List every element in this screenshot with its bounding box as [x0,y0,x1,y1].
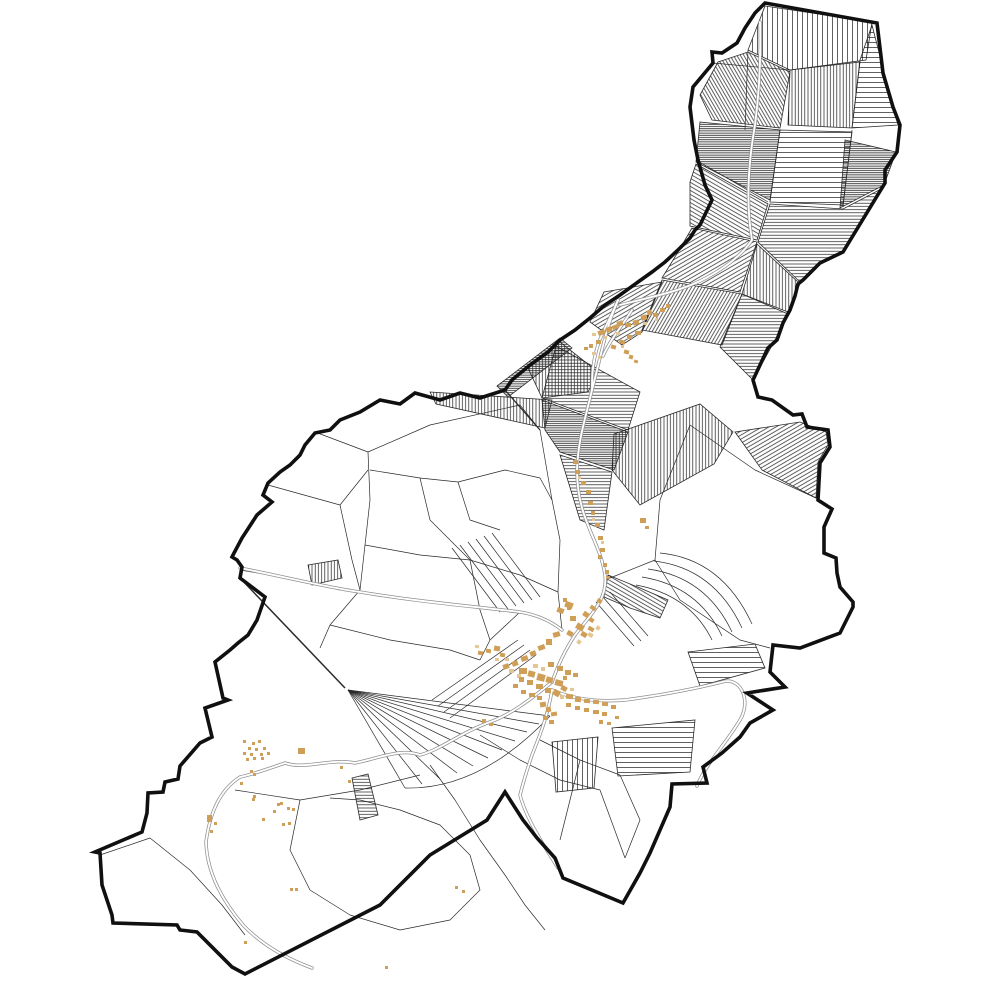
roads [206,22,760,968]
parcel-hatching [308,6,898,820]
cadastral-map [0,0,1000,1000]
map-stage [0,0,1000,1000]
